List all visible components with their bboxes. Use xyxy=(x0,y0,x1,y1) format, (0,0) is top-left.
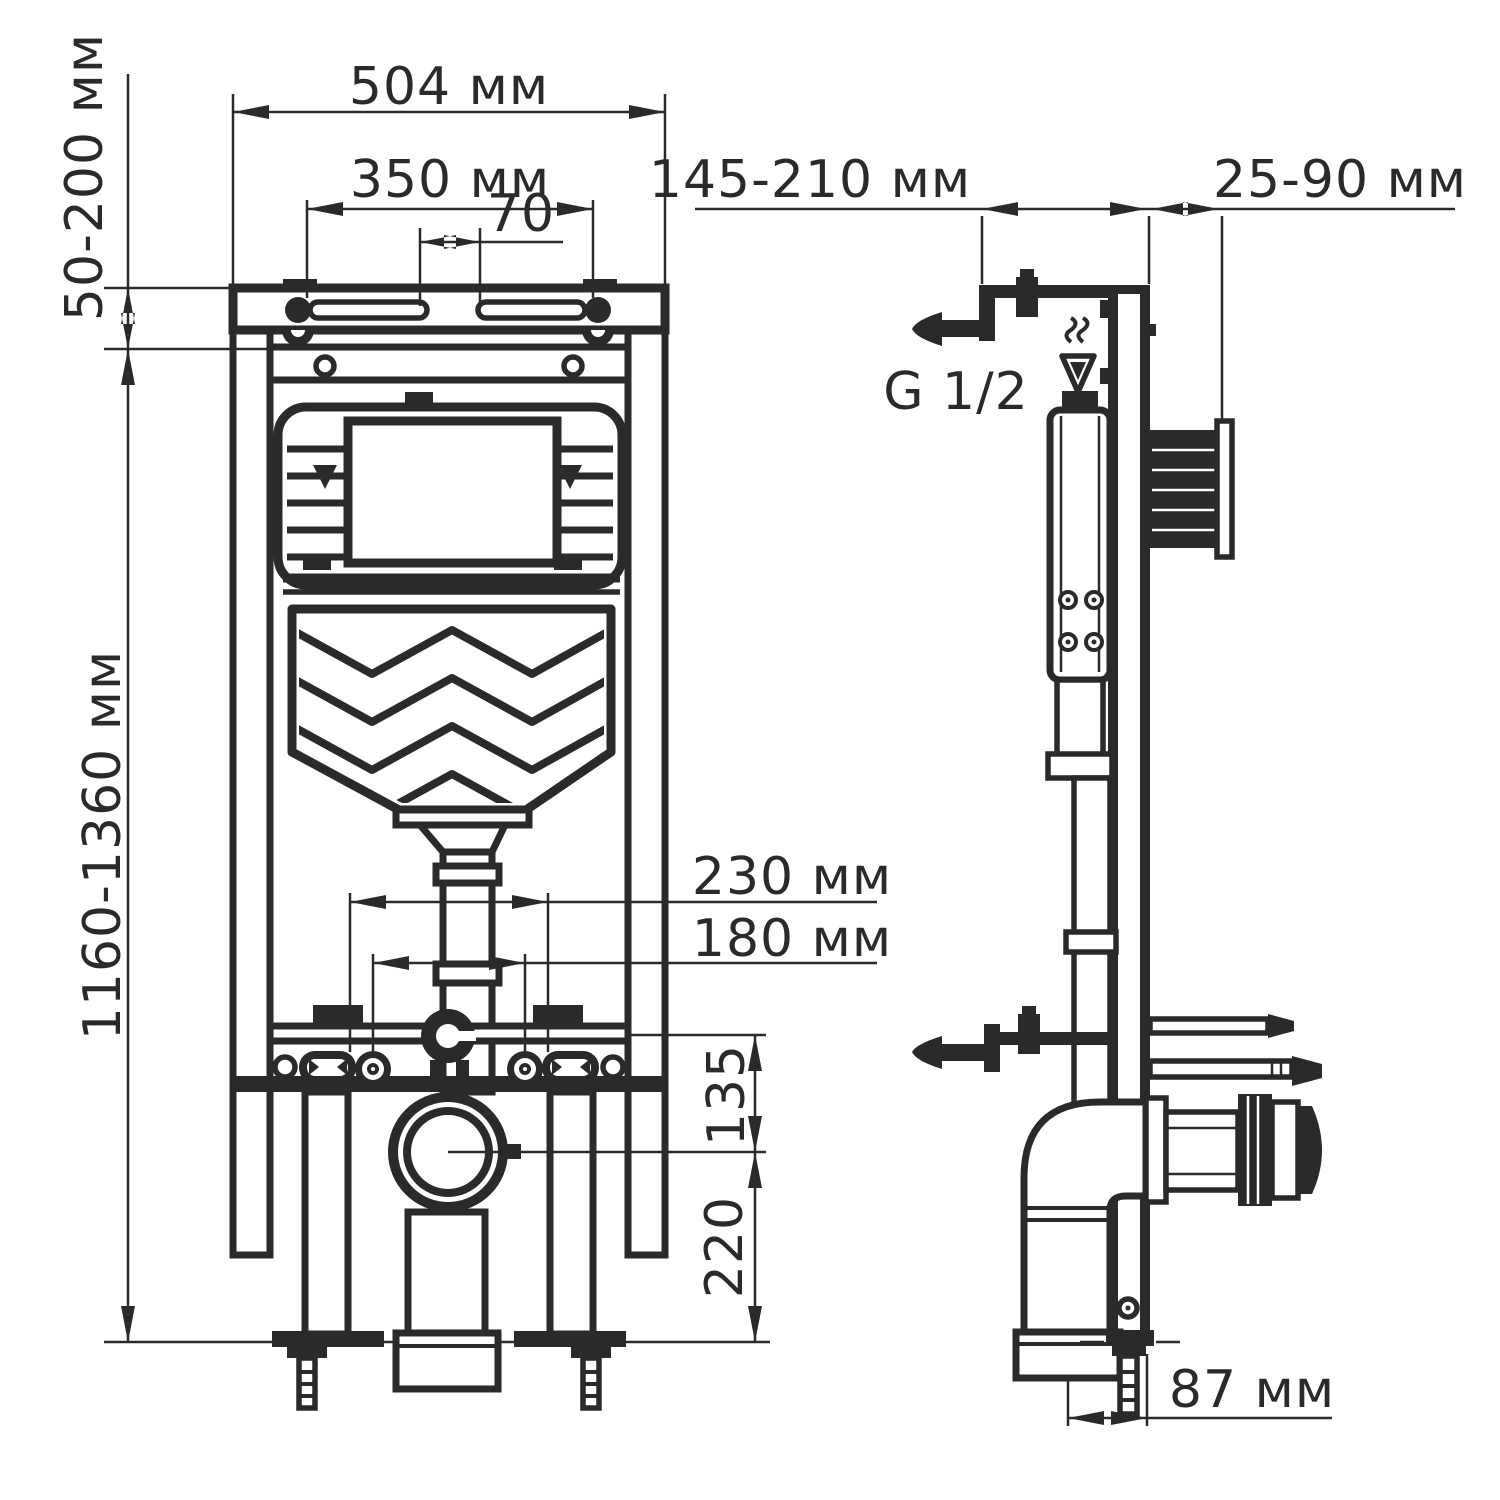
mounting-slot-right xyxy=(478,302,585,318)
wall-bracket-top xyxy=(912,269,1112,346)
dim-label-outlet-220: 220 xyxy=(695,1196,755,1298)
dim-label-outer-width: 504 мм xyxy=(349,57,549,117)
toilet-stud-hole-right xyxy=(507,1051,543,1087)
wall-anchor-icon xyxy=(912,1036,942,1069)
anchor-bolt-right xyxy=(571,1347,611,1408)
dim-label-depth-range: 145-210 мм xyxy=(649,150,971,210)
window-clip-right xyxy=(554,556,582,570)
mounting-slot-left xyxy=(310,302,427,318)
fill-valve xyxy=(1048,300,1116,1108)
dim-label-wall-range: 25-90 мм xyxy=(1213,150,1467,210)
front-view xyxy=(233,279,665,1408)
plate-bolt-right xyxy=(585,297,611,323)
cross-member-hole-left xyxy=(316,357,334,375)
frame-rail-left xyxy=(233,330,270,1255)
dim-label-outlet-135: 135 xyxy=(697,1044,757,1146)
dim-label-fixing-inner: 180 мм xyxy=(692,909,892,969)
adjustable-leg-right xyxy=(550,1092,593,1334)
dim-label-height-range: 1160-1360 мм xyxy=(73,650,133,1040)
cross-member-hole-right xyxy=(564,357,582,375)
toilet-mounting-studs xyxy=(1150,1014,1322,1086)
pipe-flare xyxy=(420,825,505,852)
finished-wall-plate xyxy=(1217,421,1232,557)
frame-rail-right xyxy=(628,330,665,1255)
foot-flange-left xyxy=(272,1331,384,1347)
flush-button-panel xyxy=(1150,421,1232,557)
rail-hole-right xyxy=(603,1057,623,1077)
slotted-bracket-right xyxy=(542,1051,599,1084)
rail-hole-left xyxy=(275,1057,295,1077)
drain-sleeve xyxy=(396,1333,498,1389)
pipe-coupling xyxy=(436,866,499,883)
dim-label-slot-gap: 70 xyxy=(487,184,555,244)
adjustable-leg-left xyxy=(305,1092,348,1334)
water-supply-icon xyxy=(1062,318,1094,392)
window-clip-left xyxy=(303,556,331,570)
label-water-connection: G 1/2 xyxy=(883,362,1029,422)
drain-sleeve-side xyxy=(1016,1332,1120,1378)
outlet-gasket xyxy=(1238,1094,1272,1206)
side-view xyxy=(912,269,1322,1414)
access-window xyxy=(348,421,557,563)
anchor-bolt-left xyxy=(287,1347,327,1408)
wall-anchor-icon xyxy=(912,312,942,346)
dim-label-fixing-outer: 230 мм xyxy=(692,847,892,907)
main-mounting-rail xyxy=(233,1076,665,1092)
cistern-tank xyxy=(292,609,611,810)
dim-label-top-range: 50-200 мм xyxy=(55,33,115,321)
foot-flange-right xyxy=(514,1331,626,1347)
plate-bolt-left xyxy=(285,297,311,323)
waste-outlet-socket xyxy=(1146,1094,1322,1206)
toilet-stud-hole-left xyxy=(355,1051,391,1087)
slotted-bracket-left xyxy=(299,1051,356,1084)
technical-drawing-page: 504 мм 350 мм 70 50-200 мм 1160-1360 мм … xyxy=(0,0,1500,1500)
drain-pipe xyxy=(408,1212,485,1333)
wc-installation-frame-drawing: 504 мм 350 мм 70 50-200 мм 1160-1360 мм … xyxy=(0,0,1500,1500)
dim-label-outlet-offset: 87 мм xyxy=(1169,1360,1335,1420)
window-top-tab xyxy=(405,392,433,408)
